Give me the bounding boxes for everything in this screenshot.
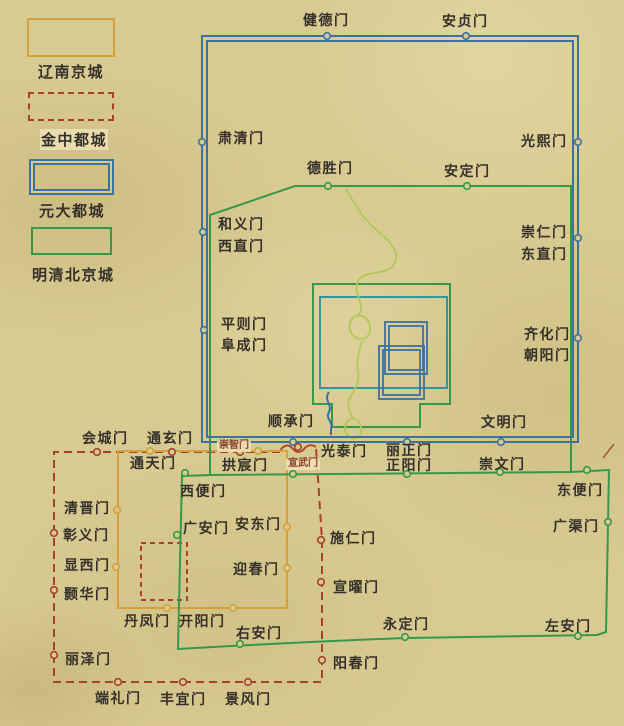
- gate-label-fengyi-men: 丰宜门: [160, 692, 207, 707]
- gate-label-tongxuan-men: 通玄门: [147, 431, 194, 446]
- gate-label-qihua-men: 齐化门: [524, 327, 571, 342]
- gate-label-wenming-men: 文明门: [481, 415, 528, 430]
- gate-label-shuncheng-men: 顺承门: [268, 414, 315, 429]
- gate-label-lize-men: 丽泽门: [65, 652, 112, 667]
- gate-label-danfeng-men: 丹凤门: [124, 614, 171, 629]
- imperial-city-outer: [313, 284, 450, 427]
- legend-label-ming-qing: 明清北京城: [32, 264, 115, 285]
- gate-label-lizheng-men: 丽正门: [386, 443, 433, 458]
- gate-label-anding-men: 安定门: [444, 164, 491, 179]
- gate-label-dongbian-men: 东便门: [557, 483, 604, 498]
- gate-label-desheng-men: 德胜门: [307, 161, 354, 176]
- gate-label-chongwen-men: 崇文门: [479, 457, 526, 472]
- gate-label-suqing-men: 肃清门: [218, 131, 265, 146]
- gate-label-pingze-men: 平则门: [221, 317, 268, 332]
- gate-label-chongzhi-men: 崇智门: [217, 441, 251, 452]
- legend-swatch-liao-nanjing: [27, 18, 115, 57]
- gate-label-tongtian-men: 通天门: [130, 456, 177, 471]
- historical-beijing-city-walls-map: 辽南京城 金中都城 元大都城 明清北京城 健德门安贞门肃清门光熙门和义门西直门崇…: [0, 0, 624, 726]
- gate-label-kaiyang-men: 开阳门: [179, 614, 226, 629]
- gate-label-anzhen-men: 安贞门: [442, 14, 489, 29]
- gate-label-huicheng-men: 会城门: [82, 431, 129, 446]
- gate-label-zhangyi-men: 彰义门: [63, 528, 110, 543]
- gate-label-xuanyao-men: 宣曜门: [333, 580, 380, 595]
- lakes-water-system: [345, 189, 396, 438]
- gate-label-xibian-men: 西便门: [180, 484, 227, 499]
- gate-label-yongding-men: 永定门: [383, 617, 430, 632]
- gate-label-zuoan-men: 左安门: [545, 619, 592, 634]
- legend-swatch-jin-zhongdu: [28, 92, 114, 121]
- gate-label-gongchen-men: 拱宸门: [222, 458, 269, 473]
- gate-label-dongzhi-men: 东直门: [521, 247, 568, 262]
- gate-label-yangchun-men: 阳春门: [333, 656, 380, 671]
- gate-label-chaoyang-men: 朝阳门: [524, 348, 571, 363]
- gate-label-guangtai-men: 光泰门: [321, 444, 368, 459]
- gate-label-jiande-men: 健德门: [303, 13, 350, 28]
- gate-label-yingchun-men: 迎春门: [233, 562, 280, 577]
- gate-label-guangqu-men: 广渠门: [553, 519, 600, 534]
- gate-label-qingjin-men: 清晋门: [64, 501, 111, 516]
- gate-label-jingfeng-men: 景风门: [225, 692, 272, 707]
- gate-label-xianxi-men: 显西门: [64, 558, 111, 573]
- gate-label-heyi-men: 和义门: [218, 217, 265, 232]
- legend-swatch-yuan-dadu: [29, 159, 114, 195]
- gate-label-duanli-men: 端礼门: [95, 691, 142, 706]
- legend-swatch-ming-qing: [31, 227, 112, 255]
- gate-label-andong-men: 安东门: [235, 517, 282, 532]
- gate-label-guangxi-men: 光熙门: [521, 134, 568, 149]
- legend-label-liao-nanjing: 辽南京城: [38, 61, 104, 82]
- palace-river: [327, 392, 332, 435]
- gate-label-zhengyang-men: 正阳门: [386, 458, 433, 473]
- gate-label-xizhi-men: 西直门: [218, 239, 265, 254]
- gate-label-shiren-men: 施仁门: [330, 531, 377, 546]
- river-slash: [603, 444, 614, 458]
- gate-label-haohua-men: 颢华门: [64, 587, 111, 602]
- legend-label-yuan-dadu: 元大都城: [39, 200, 105, 221]
- gate-label-chongren-men: 崇仁门: [521, 225, 568, 240]
- gate-label-xuanwu-men: 宣武门: [286, 459, 320, 470]
- gate-label-youan-men: 右安门: [236, 626, 283, 641]
- legend-label-jin-zhongdu: 金中都城: [40, 129, 108, 150]
- gate-label-fucheng-men: 阜成门: [221, 338, 268, 353]
- gate-label-guangan-men: 广安门: [183, 521, 230, 536]
